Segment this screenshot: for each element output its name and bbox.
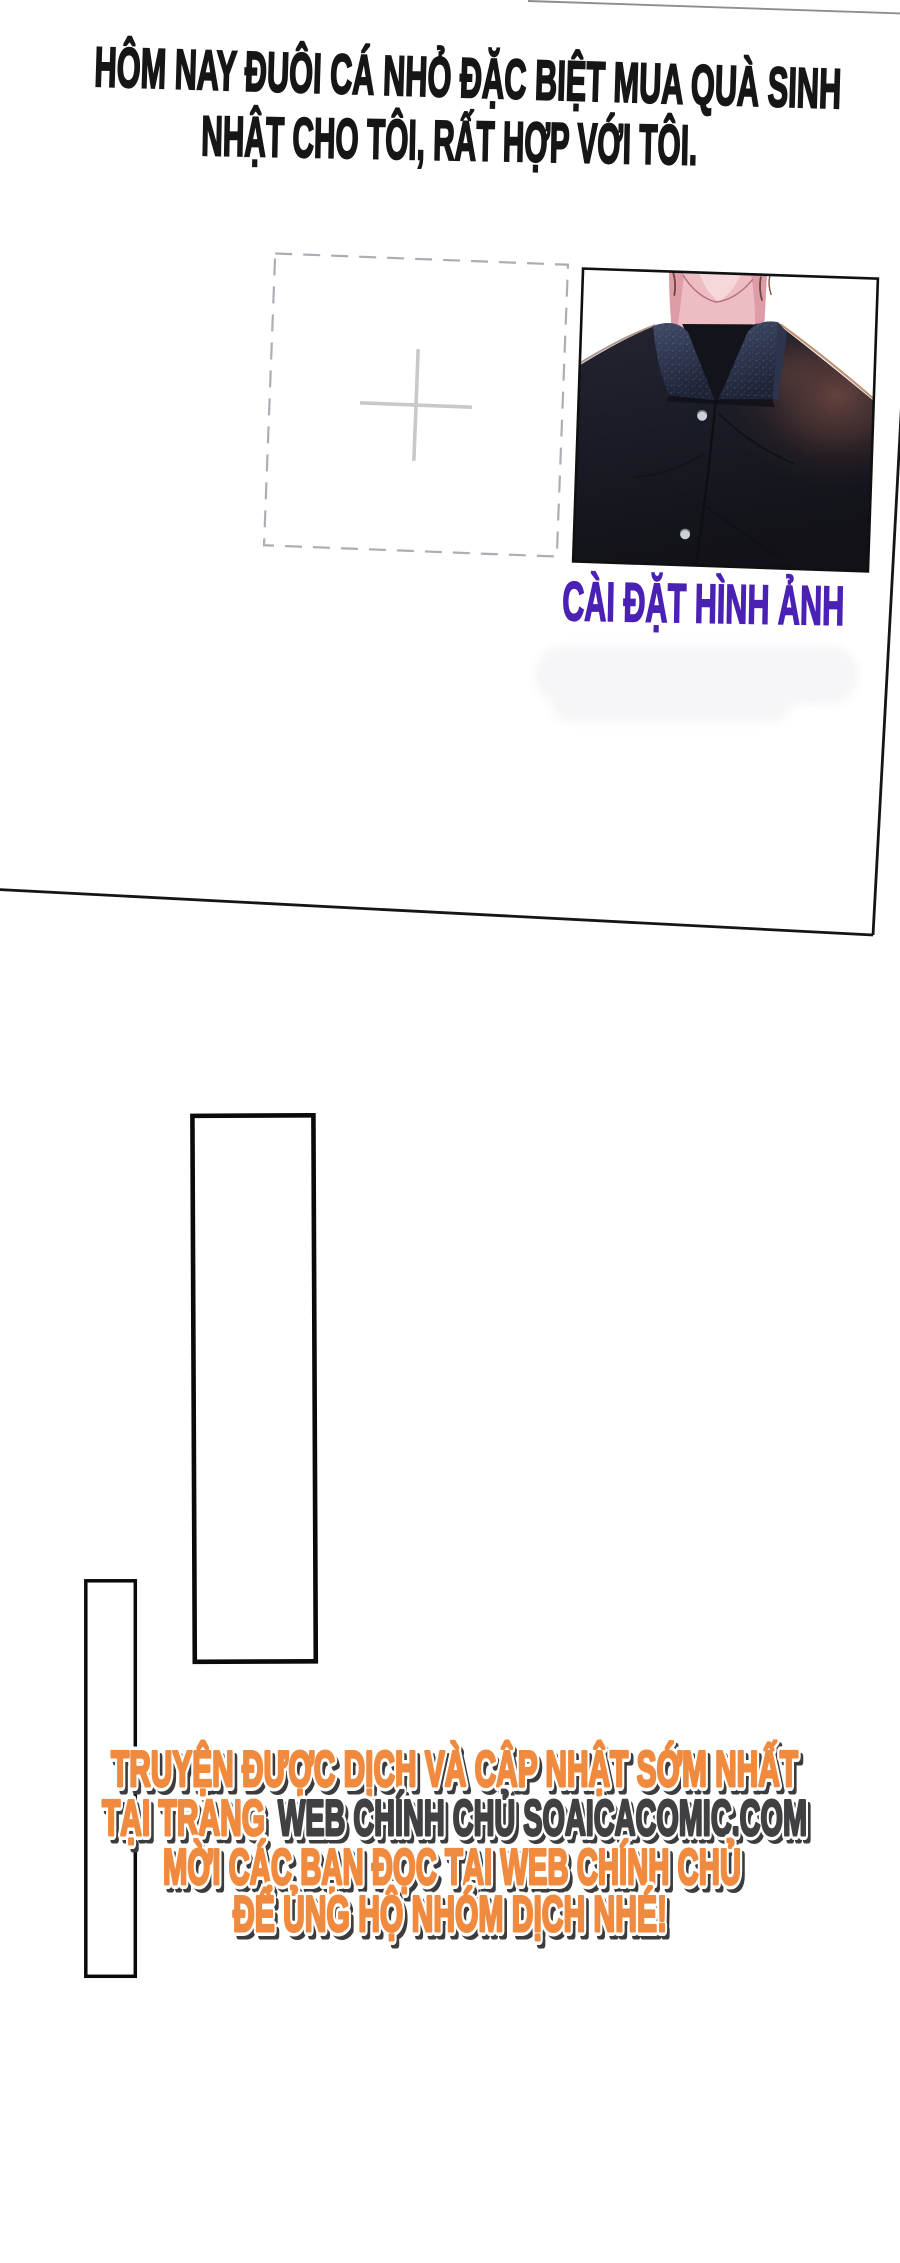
svg-text:WEB CHÍNH CHỦ SOAICACOMIC.COM: WEB CHÍNH CHỦ SOAICACOMIC.COM bbox=[278, 1789, 807, 1846]
svg-text:ĐỂ ỦNG HỘ NHÓM DỊCH NHÉ!: ĐỂ ỦNG HỘ NHÓM DỊCH NHÉ! bbox=[233, 1885, 667, 1942]
svg-text:TRUYỆN ĐƯỢC DỊCH VÀ CẬP NHẬT S: TRUYỆN ĐƯỢC DỊCH VÀ CẬP NHẬT SỚM NHẤT bbox=[111, 1741, 798, 1797]
svg-text:TẠI TRANG: TẠI TRANG bbox=[102, 1790, 265, 1846]
svg-text:CÀI ĐẶT HÌNH ẢNH: CÀI ĐẶT HÌNH ẢNH bbox=[562, 570, 845, 637]
svg-text:NHẬT CHO TÔI, RẤT HỢP VỚI TÔI.: NHẬT CHO TÔI, RẤT HỢP VỚI TÔI. bbox=[201, 104, 698, 177]
